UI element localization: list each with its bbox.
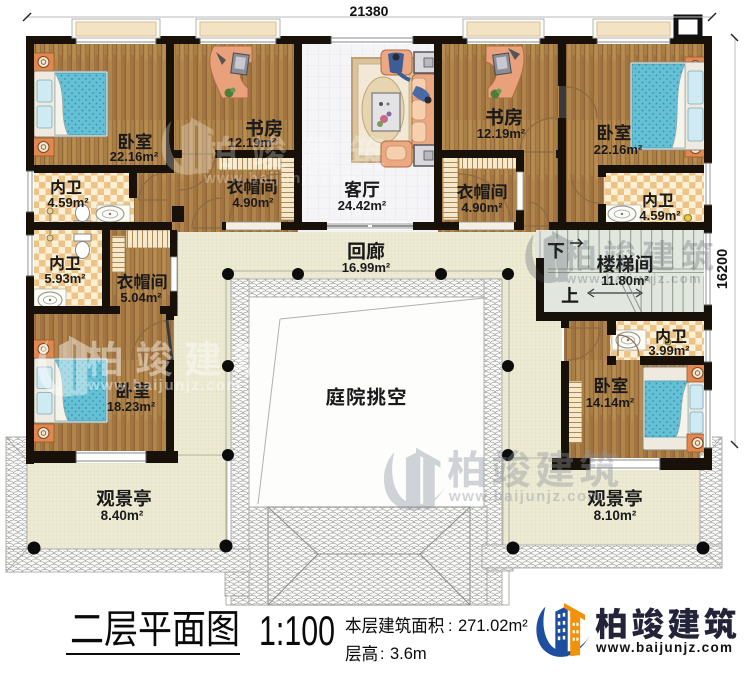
svg-text::: :: [380, 646, 384, 663]
svg-text:24.42m²: 24.42m²: [338, 198, 387, 213]
svg-text:18.23m²: 18.23m²: [107, 399, 156, 414]
svg-text:4.90m²: 4.90m²: [232, 195, 274, 210]
svg-text:14.14m²: 14.14m²: [586, 395, 635, 410]
svg-text:www.baijunjz.com: www.baijunjz.com: [203, 170, 357, 187]
svg-text:12.19m²: 12.19m²: [477, 126, 526, 141]
svg-text:4.90m²: 4.90m²: [461, 200, 503, 215]
svg-text:16200: 16200: [715, 249, 731, 289]
svg-text:5.93m²: 5.93m²: [44, 271, 86, 286]
svg-text:21380: 21380: [350, 3, 389, 19]
svg-text:www.baijunjz.com: www.baijunjz.com: [595, 640, 733, 655]
svg-text:4.59m²: 4.59m²: [47, 195, 89, 210]
svg-text:3.99m²: 3.99m²: [648, 343, 690, 358]
svg-text::: :: [448, 618, 452, 635]
svg-text:8.40m²: 8.40m²: [101, 508, 144, 523]
svg-text:1:100: 1:100: [259, 607, 335, 654]
svg-text:www.baijunjz.com: www.baijunjz.com: [87, 377, 241, 394]
svg-text:22.16m²: 22.16m²: [594, 142, 643, 157]
svg-text:www.baijunjz.com: www.baijunjz.com: [565, 271, 702, 286]
svg-text:271.02m²: 271.02m²: [458, 617, 528, 635]
svg-text:16.99m²: 16.99m²: [342, 260, 391, 275]
svg-text:www.baijunjz.com: www.baijunjz.com: [448, 488, 602, 505]
svg-text:3.6m: 3.6m: [390, 645, 427, 663]
svg-text:8.10m²: 8.10m²: [594, 508, 637, 523]
svg-text:22.16m²: 22.16m²: [110, 149, 159, 164]
svg-text:5.04m²: 5.04m²: [120, 290, 162, 305]
svg-text:4.59m²: 4.59m²: [639, 208, 681, 223]
